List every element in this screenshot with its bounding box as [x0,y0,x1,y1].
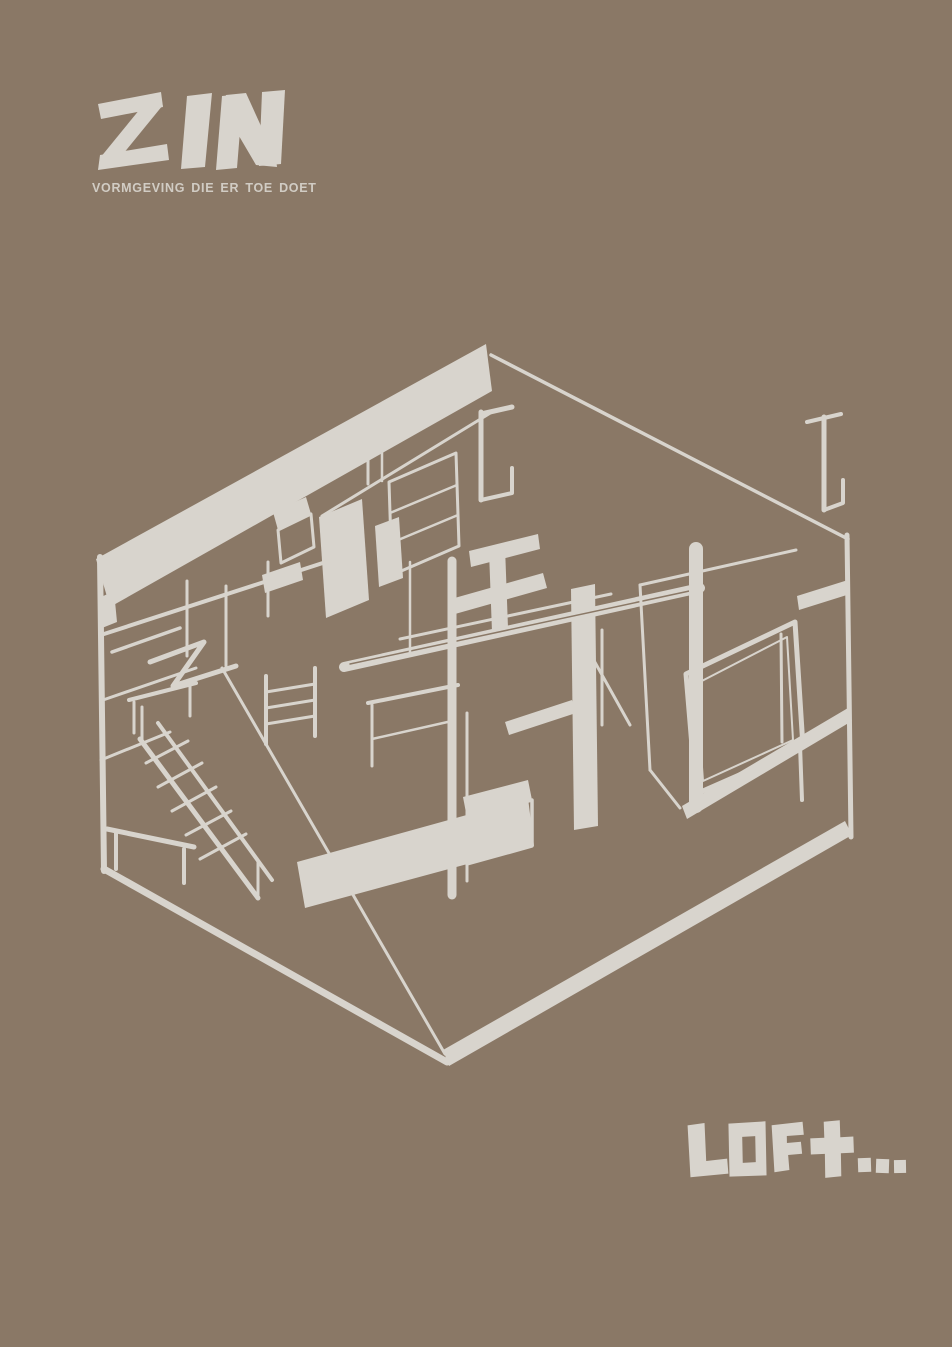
letter-l [688,1123,729,1178]
poster-canvas: ZIN VORMGEVING DIE ER TOE DOET [0,0,952,1347]
ellipsis-dot [894,1160,906,1173]
ellipsis-dot [858,1158,871,1172]
room-outline [100,355,851,1062]
ellipsis-dot [876,1159,889,1173]
sketch-line-work [100,355,851,1062]
loft-wordmark-glyphs [684,1106,908,1182]
letter-f [772,1122,805,1173]
upper-right-band [797,580,850,610]
sketch-filled-masses [96,344,852,1066]
bed-slab [297,798,534,908]
column-wide [571,584,598,830]
mid-bar [505,700,576,735]
letter-t-cross [809,1119,855,1178]
letter-o [728,1121,768,1178]
loft-wordmark: LOFt... [684,1106,908,1182]
window-wall [640,550,803,808]
wall-panel-tall [319,499,369,618]
